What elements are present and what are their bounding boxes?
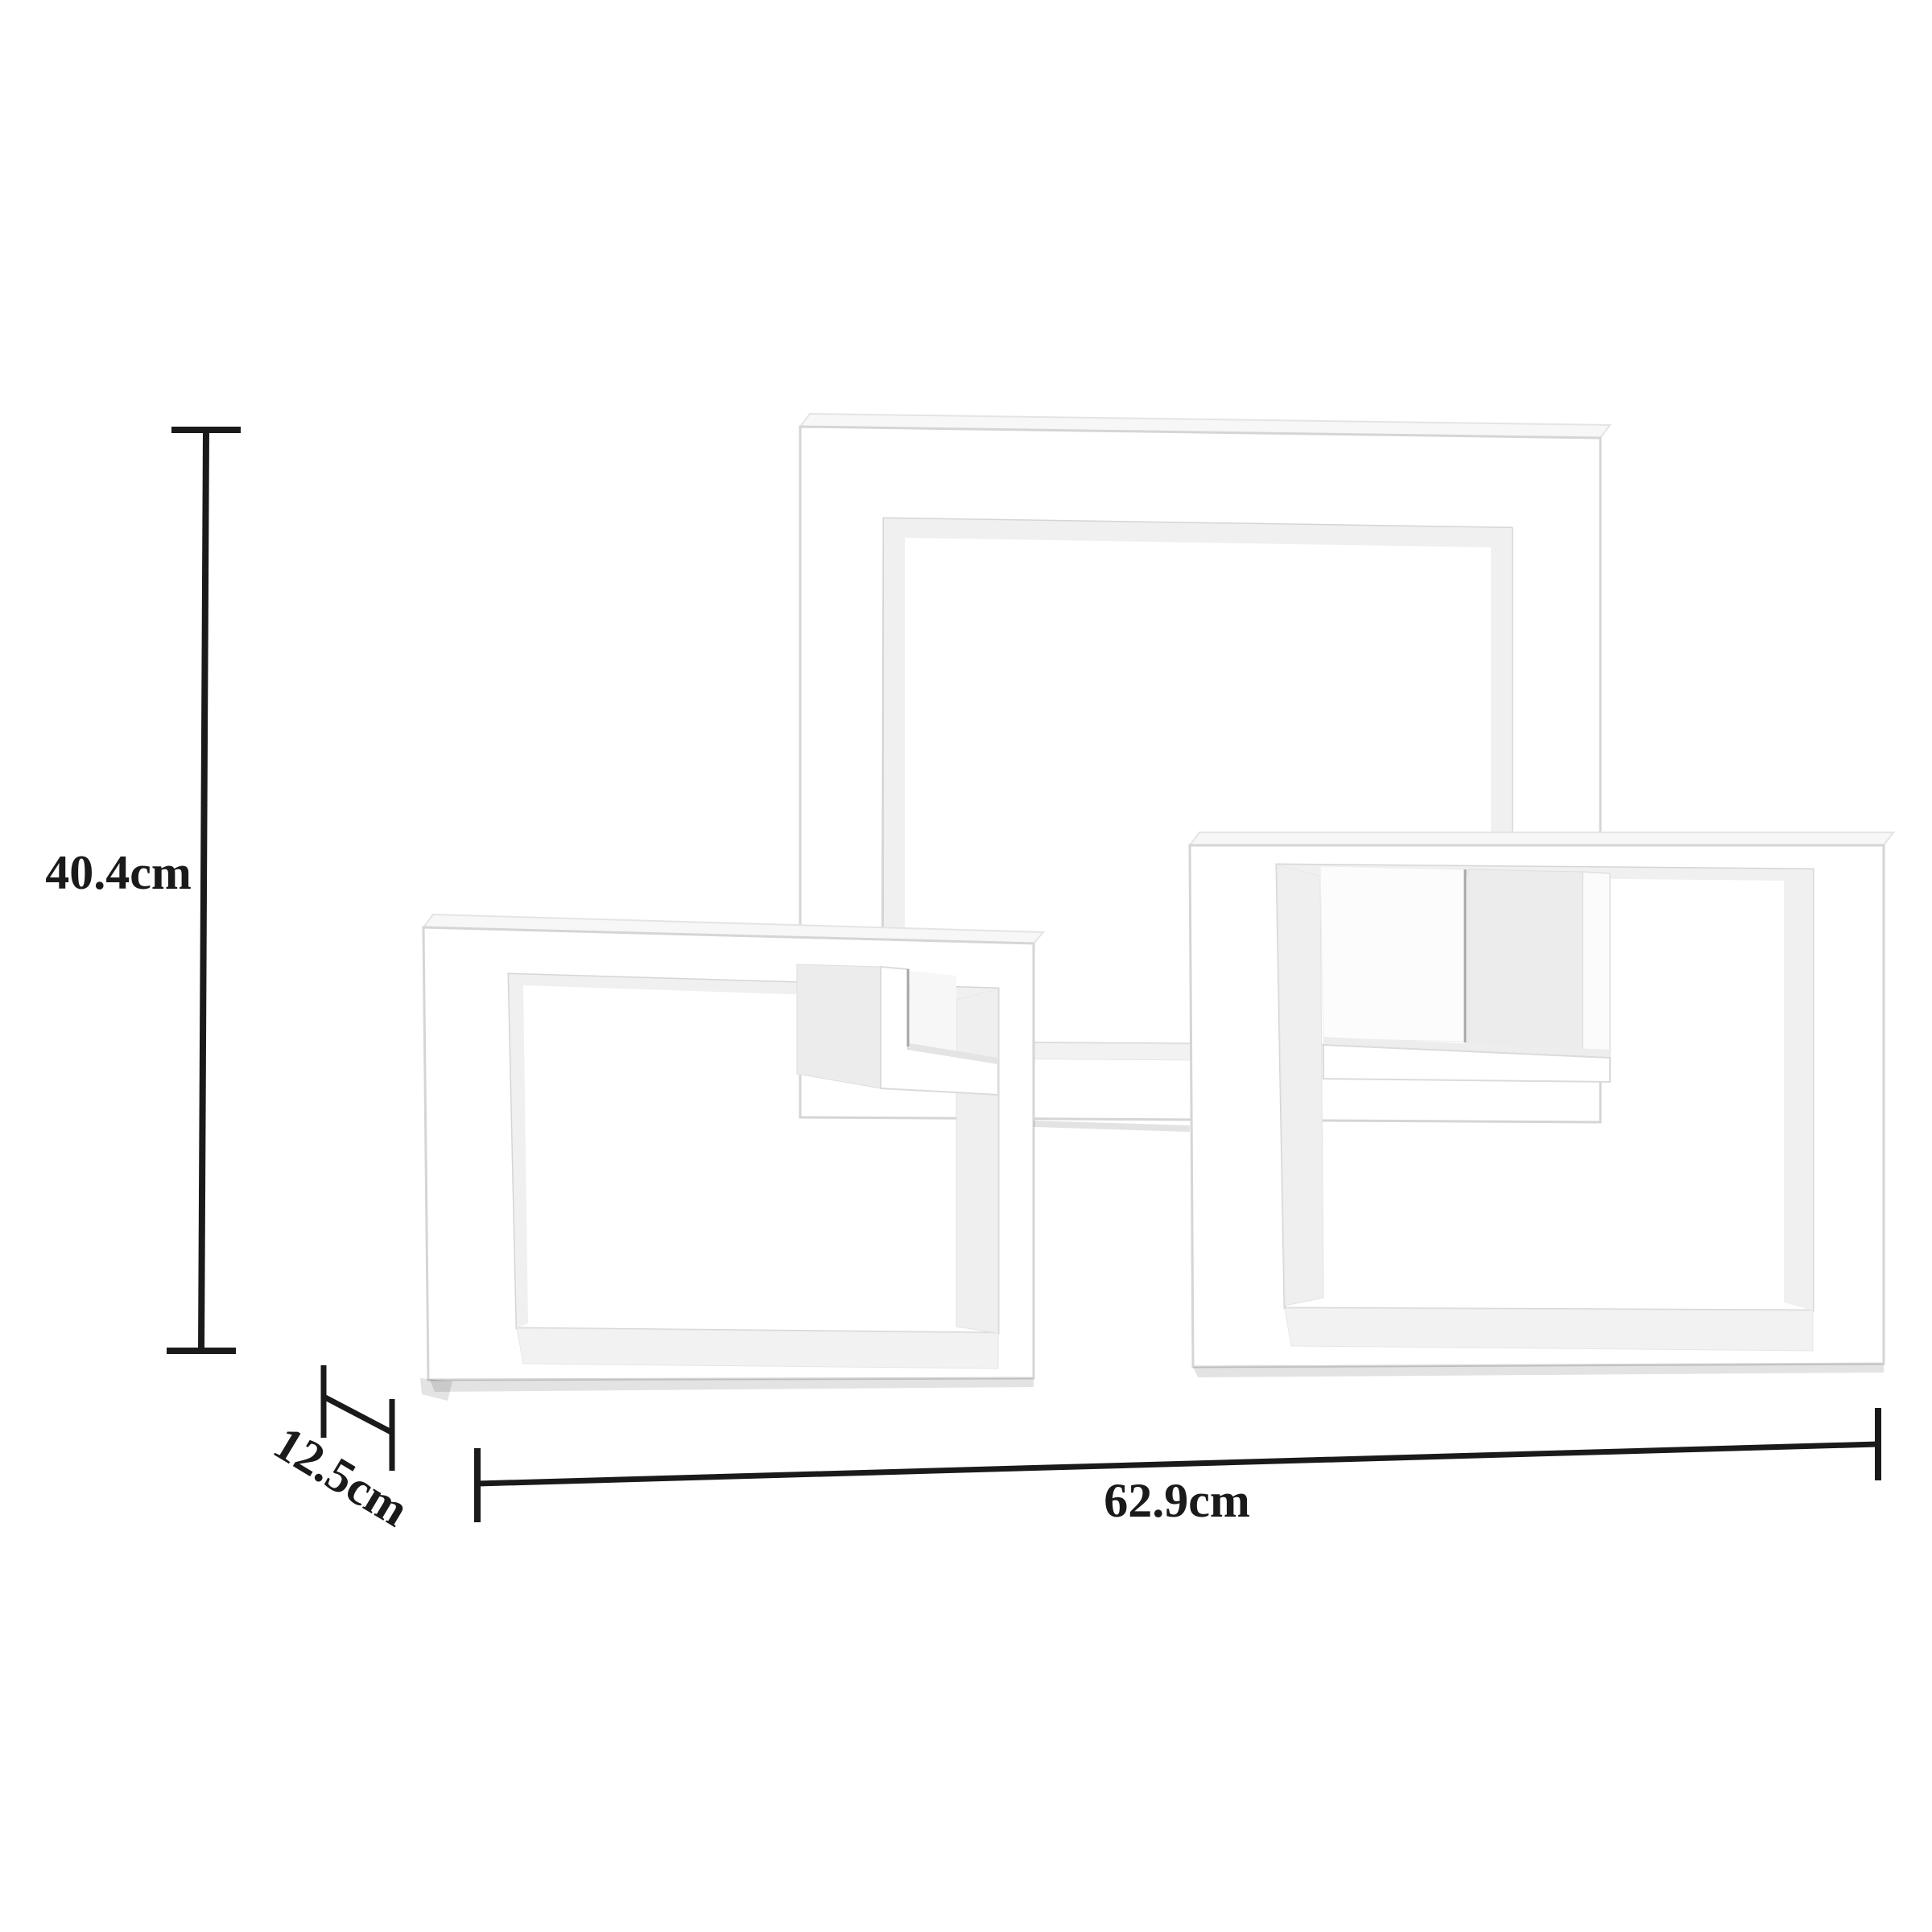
joint-back-panel — [910, 971, 956, 1051]
diagram-canvas: 40.4cm 12.5cm 62.9cm — [0, 0, 1932, 1932]
joint-shade-face — [797, 964, 881, 1088]
left-cube-bottom-rail-top-face — [517, 1328, 998, 1368]
left-cube-shadow — [430, 1378, 1034, 1392]
wall-shelf-illustration — [420, 414, 1893, 1401]
height-dimension-label: 40.4cm — [45, 846, 192, 899]
right-cube-top-face — [1190, 832, 1893, 845]
left-cube-corner-shadow — [420, 1378, 452, 1401]
depth-dimension-line — [325, 1397, 391, 1432]
joint-stile-front-strip — [1583, 872, 1610, 1072]
right-cube-interlock-joint — [1320, 866, 1610, 1082]
right-cube-bottom-rail-top-face — [1285, 1308, 1813, 1351]
middle-plank-shadow — [1034, 1121, 1190, 1132]
height-dimension-line — [201, 430, 206, 1351]
top-cube-left-stile-inner-face — [884, 518, 905, 935]
product-dimension-diagram: 40.4cm 12.5cm 62.9cm — [0, 0, 1932, 1932]
left-cube-right-stile-side-face — [956, 989, 998, 1333]
left-cube — [423, 914, 1043, 1380]
joint-shade-face — [1468, 869, 1583, 1069]
right-cube-left-stile-side-face — [1277, 865, 1323, 1306]
right-cube-right-stile-inner-face — [1784, 869, 1813, 1311]
width-dimension-label: 62.9cm — [1104, 1474, 1250, 1527]
joint-back-opening — [1320, 866, 1465, 1042]
top-cube-right-stile-inner-face — [1491, 528, 1512, 857]
